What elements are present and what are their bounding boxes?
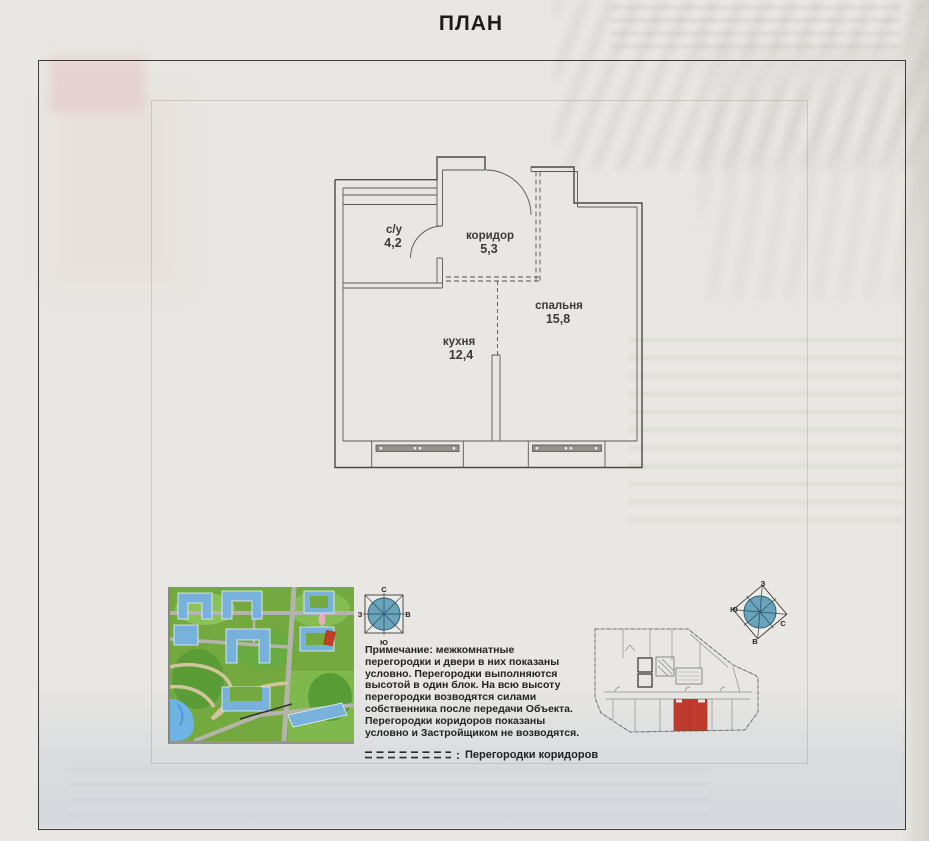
room-label-bathroom: с/у xyxy=(386,224,403,236)
note-text: межкомнатные перегородки и двери в них п… xyxy=(365,644,579,739)
compass2-west-label: З xyxy=(761,579,766,588)
page-title: ПЛАН xyxy=(38,12,904,36)
room-area-bedroom: 15,8 xyxy=(546,312,570,326)
compass2-south-label: Ю xyxy=(730,605,738,614)
room-area-corridor: 5,3 xyxy=(480,242,497,256)
room-area-bathroom: 4,2 xyxy=(384,236,401,250)
legend-label: Перегородки коридоров xyxy=(465,749,598,761)
scanned-plan-page: ПЛАН xyxy=(0,0,929,841)
legend-colon: : xyxy=(456,748,460,762)
room-area-kitchen: 12,4 xyxy=(449,348,473,362)
note: Примечание: межкомнатные перегородки и д… xyxy=(365,645,583,739)
compass-rose-keyplan: З Ю С В xyxy=(728,576,796,646)
compass-north-label: С xyxy=(381,585,387,594)
compass-east-label: В xyxy=(405,610,411,619)
floor-plan: с/у 4,2 коридор 5,3 спальня 15,8 кухня 1… xyxy=(330,148,650,478)
room-label-kitchen: кухня xyxy=(443,336,475,348)
highlighted-unit xyxy=(674,700,707,731)
door-arcs xyxy=(411,170,532,258)
compass-west-label: З xyxy=(358,610,363,619)
legend-symbol xyxy=(365,750,451,760)
compass-rose-map: С Ю В З xyxy=(356,583,412,647)
site-map xyxy=(168,587,354,744)
room-label-corridor: коридор xyxy=(466,230,514,242)
stairs-icon xyxy=(656,657,702,684)
window-icon xyxy=(376,445,602,452)
elevator-icon xyxy=(638,658,652,687)
note-label: Примечание: xyxy=(365,644,433,656)
compass2-north-label: С xyxy=(780,619,786,628)
legend: : Перегородки коридоров xyxy=(365,748,598,762)
room-label-bedroom: спальня xyxy=(535,300,583,312)
map-pink-marker xyxy=(319,613,326,625)
compass2-east-label: В xyxy=(752,637,758,646)
corridor-partition-dashed xyxy=(446,172,540,282)
